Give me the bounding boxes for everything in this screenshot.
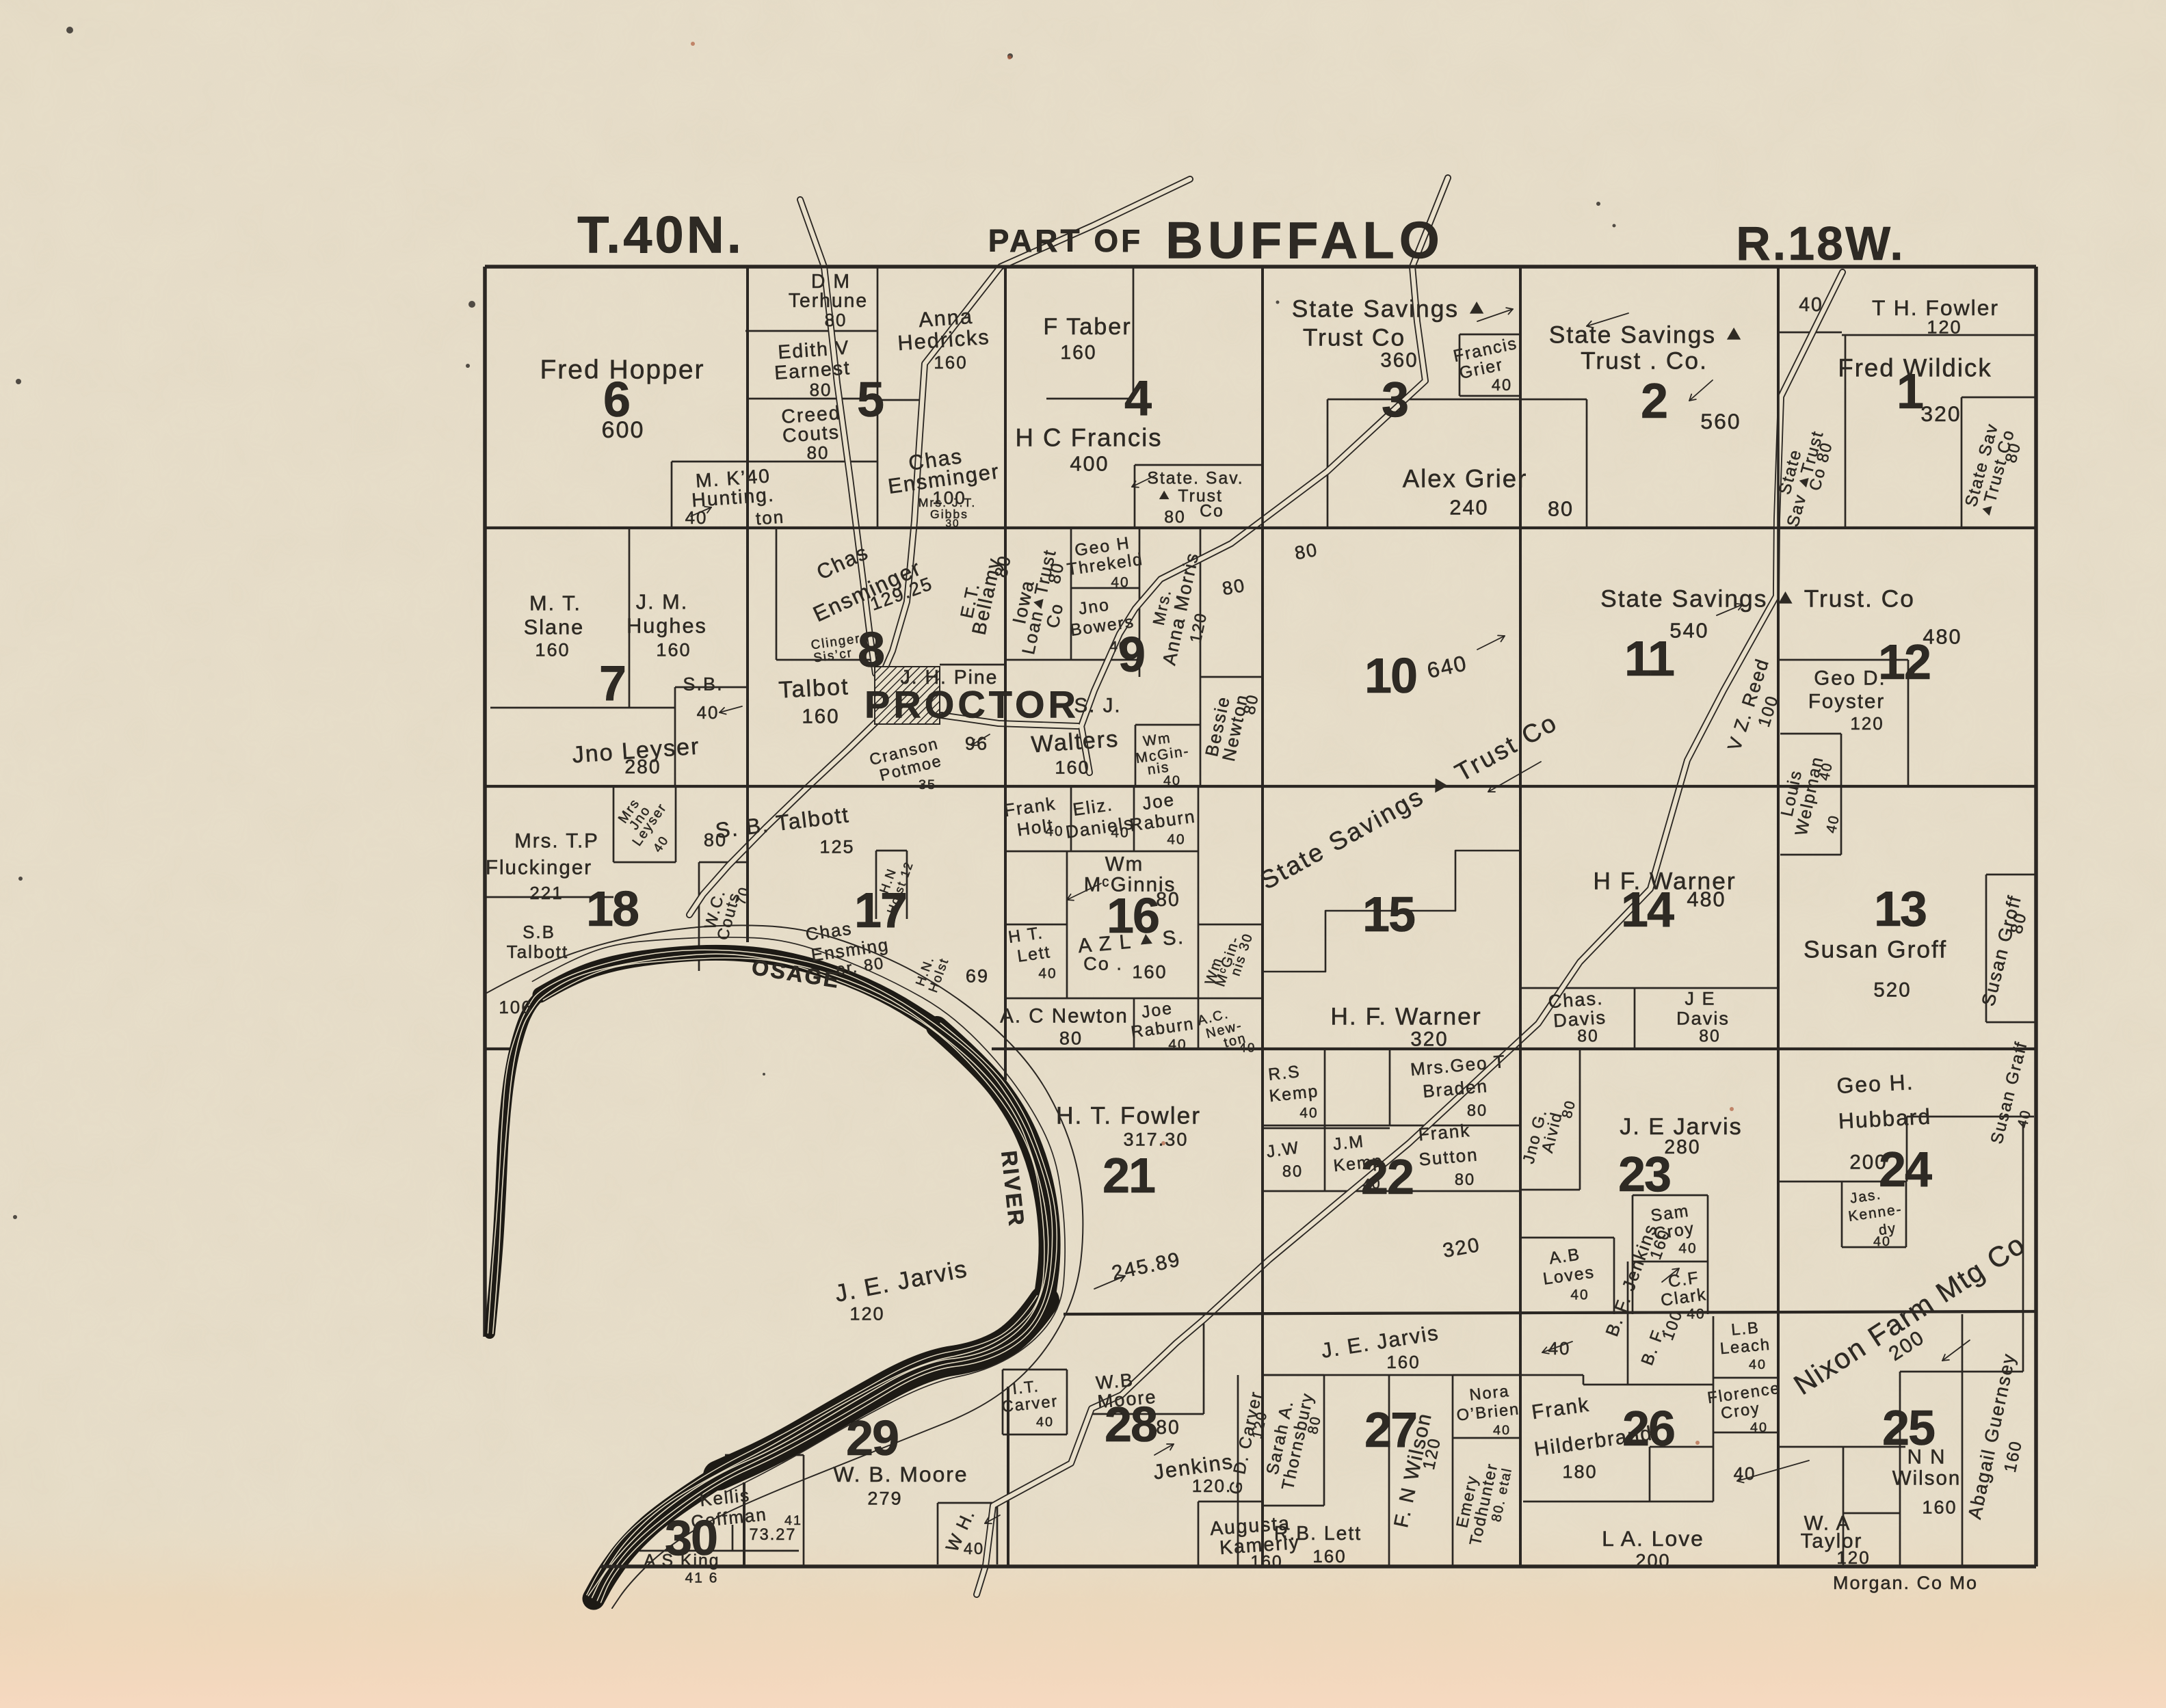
svg-text:9: 9 — [1118, 628, 1144, 682]
svg-text:80: 80 — [704, 829, 727, 851]
svg-text:15: 15 — [1362, 888, 1415, 942]
svg-text:S. J.: S. J. — [1074, 695, 1121, 717]
svg-text:320: 320 — [1920, 401, 1961, 426]
svg-text:80: 80 — [1548, 497, 1574, 521]
svg-text:Fred Wildick: Fred Wildick — [1838, 354, 1992, 382]
svg-text:120: 120 — [1927, 317, 1962, 338]
svg-text:120: 120 — [1836, 1547, 1870, 1568]
svg-text:106: 106 — [499, 997, 532, 1017]
svg-text:200: 200 — [1849, 1151, 1887, 1174]
svg-text:80: 80 — [1282, 1163, 1303, 1181]
svg-text:J. H. Pine: J. H. Pine — [901, 667, 999, 689]
svg-text:13: 13 — [1874, 882, 1926, 937]
svg-text:Co .: Co . — [1083, 953, 1123, 974]
svg-text:S.B: S.B — [523, 922, 555, 942]
svg-text:80: 80 — [1059, 1028, 1083, 1049]
svg-text:40: 40 — [1167, 832, 1185, 848]
svg-text:40: 40 — [1750, 1420, 1768, 1435]
svg-text:40: 40 — [1687, 1307, 1705, 1322]
svg-text:80: 80 — [825, 310, 847, 330]
svg-text:80: 80 — [1467, 1102, 1488, 1120]
svg-text:40: 40 — [1749, 1357, 1767, 1372]
svg-text:240: 240 — [1449, 496, 1488, 520]
svg-text:40: 40 — [1299, 1106, 1318, 1121]
svg-text:18: 18 — [586, 882, 638, 937]
svg-text:80: 80 — [1164, 509, 1186, 527]
svg-text:80: 80 — [1156, 1417, 1180, 1439]
svg-text:Trust . Co.: Trust . Co. — [1581, 348, 1708, 375]
svg-text:Geo H.: Geo H. — [1836, 1069, 1915, 1098]
svg-text:29: 29 — [846, 1411, 898, 1466]
svg-text:160: 160 — [1312, 1546, 1346, 1566]
svg-text:Alex Grier: Alex Grier — [1403, 465, 1528, 493]
svg-text:40: 40 — [1873, 1234, 1891, 1249]
svg-text:80: 80 — [1699, 1028, 1721, 1046]
svg-text:40: 40 — [1239, 1041, 1256, 1055]
svg-text:40: 40 — [697, 702, 719, 723]
svg-text:80: 80 — [807, 442, 830, 463]
svg-text:7: 7 — [599, 656, 625, 711]
svg-text:Susan Groff: Susan Groff — [1804, 937, 1947, 963]
svg-text:40: 40 — [1036, 1415, 1054, 1430]
svg-text:160: 160 — [656, 639, 691, 660]
svg-text:80: 80 — [1455, 1171, 1475, 1189]
svg-text:8: 8 — [858, 623, 884, 678]
svg-text:40: 40 — [964, 1540, 984, 1558]
svg-text:96: 96 — [965, 733, 988, 754]
svg-text:Talbot: Talbot — [778, 673, 849, 703]
svg-text:F Taber: F Taber — [1043, 314, 1131, 340]
svg-text:11: 11 — [1624, 632, 1674, 686]
svg-text:69: 69 — [966, 965, 989, 987]
svg-text:480: 480 — [1687, 888, 1726, 911]
svg-text:40: 40 — [1109, 639, 1128, 655]
svg-text:J.M: J.M — [1332, 1132, 1365, 1154]
svg-text:80: 80 — [1156, 889, 1180, 911]
svg-text:80: 80 — [1220, 574, 1247, 599]
svg-text:40: 40 — [1799, 294, 1823, 316]
svg-text:160: 160 — [1060, 342, 1096, 364]
svg-text:N N: N N — [1907, 1446, 1946, 1469]
svg-text:Davis: Davis — [1676, 1008, 1730, 1029]
svg-text:180: 180 — [1562, 1461, 1597, 1482]
svg-text:400: 400 — [1070, 452, 1109, 476]
svg-text:40: 40 — [1362, 1177, 1381, 1192]
svg-text:120: 120 — [1850, 713, 1884, 734]
svg-text:540: 540 — [1669, 619, 1708, 643]
svg-text:41 6: 41 6 — [685, 1571, 719, 1586]
svg-text:H. T. Fowler: H. T. Fowler — [1056, 1103, 1201, 1130]
svg-text:120: 120 — [849, 1303, 884, 1324]
svg-text:73.27: 73.27 — [749, 1526, 796, 1544]
svg-text:T.40N.: T.40N. — [577, 206, 744, 265]
svg-text:160: 160 — [1250, 1553, 1282, 1572]
svg-text:40: 40 — [1168, 1037, 1187, 1053]
svg-text:160: 160 — [1132, 961, 1167, 983]
svg-text:40: 40 — [1163, 773, 1181, 788]
svg-text:40: 40 — [1493, 1423, 1511, 1438]
svg-text:40: 40 — [1045, 824, 1064, 840]
svg-text:40: 40 — [1734, 1463, 1756, 1484]
svg-text:320: 320 — [1410, 1028, 1448, 1051]
svg-text:560: 560 — [1700, 409, 1741, 433]
svg-text:Talbott: Talbott — [507, 942, 568, 962]
svg-text:2: 2 — [1641, 374, 1667, 429]
svg-text:10: 10 — [1364, 649, 1416, 704]
svg-text:221: 221 — [529, 883, 563, 903]
svg-text:State. Sav.: State. Sav. — [1147, 470, 1243, 488]
svg-text:40: 40 — [1492, 377, 1512, 395]
svg-text:40: 40 — [685, 507, 708, 528]
svg-text:Terhune: Terhune — [789, 290, 868, 312]
svg-text:160: 160 — [535, 639, 570, 660]
svg-text:80: 80 — [1293, 539, 1319, 563]
svg-text:R.S: R.S — [1267, 1063, 1302, 1084]
svg-text:PART OF: PART OF — [988, 223, 1143, 258]
svg-text:40: 40 — [1038, 966, 1057, 982]
svg-text:Hughes: Hughes — [626, 614, 707, 638]
svg-text:279: 279 — [867, 1488, 902, 1509]
svg-text:Mrs. T.P: Mrs. T.P — [514, 830, 599, 853]
svg-text:Slane: Slane — [524, 615, 584, 639]
svg-text:PROCTOR: PROCTOR — [864, 683, 1079, 726]
svg-text:280: 280 — [1664, 1136, 1700, 1158]
svg-text:40: 40 — [1111, 575, 1129, 591]
svg-text:30: 30 — [945, 518, 960, 530]
svg-text:Fluckinger: Fluckinger — [486, 857, 592, 879]
svg-text:4: 4 — [1124, 371, 1152, 426]
svg-text:Hubbard: Hubbard — [1838, 1104, 1932, 1133]
svg-text:200: 200 — [1635, 1550, 1670, 1571]
svg-text:W. B. Moore: W. B. Moore — [833, 1462, 968, 1486]
svg-text:600: 600 — [602, 417, 645, 443]
svg-text:21: 21 — [1102, 1149, 1155, 1203]
svg-text:40: 40 — [1570, 1287, 1589, 1303]
svg-text:160: 160 — [1386, 1352, 1420, 1372]
svg-text:Foyster: Foyster — [1808, 691, 1885, 713]
svg-text:280: 280 — [624, 756, 661, 778]
svg-text:160: 160 — [1922, 1497, 1957, 1518]
svg-text:BUFFALO: BUFFALO — [1165, 212, 1444, 270]
svg-text:State Savings ⯅ Trust. Co: State Savings ⯅ Trust. Co — [1600, 586, 1915, 613]
svg-text:160: 160 — [934, 352, 967, 373]
svg-text:A. C Newton: A. C Newton — [1000, 1005, 1128, 1028]
svg-text:80: 80 — [810, 379, 832, 400]
svg-text:35: 35 — [919, 777, 936, 792]
svg-text:40: 40 — [1111, 825, 1129, 841]
svg-text:A S King: A S King — [644, 1552, 720, 1571]
svg-text:40: 40 — [1548, 1338, 1571, 1359]
svg-text:R.18W.: R.18W. — [1736, 217, 1905, 270]
svg-text:L A. Love: L A. Love — [1602, 1526, 1704, 1551]
svg-text:317.30: 317.30 — [1124, 1129, 1189, 1150]
svg-text:80: 80 — [1577, 1028, 1599, 1046]
svg-text:ton: ton — [755, 507, 785, 529]
svg-text:J. M.: J. M. — [636, 590, 688, 614]
svg-text:23: 23 — [1618, 1147, 1670, 1202]
svg-text:L.B: L.B — [1730, 1319, 1760, 1339]
svg-text:S.B.: S.B. — [683, 673, 723, 695]
svg-text:Wm: Wm — [1105, 853, 1144, 876]
svg-text:125: 125 — [819, 836, 854, 857]
svg-text:360: 360 — [1380, 349, 1418, 372]
svg-text:State Savings ⯅: State Savings ⯅ — [1292, 296, 1488, 323]
svg-text:Trust Co: Trust Co — [1303, 325, 1405, 351]
svg-text:State Savings ⯅: State Savings ⯅ — [1549, 322, 1745, 349]
svg-text:Fred Hopper: Fred Hopper — [540, 356, 704, 385]
svg-text:160: 160 — [1055, 757, 1089, 778]
svg-text:Wilson: Wilson — [1892, 1467, 1962, 1490]
svg-text:160: 160 — [802, 706, 839, 728]
svg-text:Geo D.: Geo D. — [1814, 667, 1886, 690]
svg-text:3: 3 — [1382, 373, 1408, 427]
svg-text:Morgan. Co Mo: Morgan. Co Mo — [1833, 1573, 1978, 1593]
svg-text:5: 5 — [857, 373, 884, 427]
svg-text:40: 40 — [1678, 1241, 1697, 1257]
svg-text:H C Francis: H C Francis — [1015, 424, 1162, 452]
svg-text:J E: J E — [1685, 988, 1715, 1009]
svg-text:M. T.: M. T. — [529, 591, 581, 615]
svg-text:480: 480 — [1923, 625, 1962, 649]
svg-text:520: 520 — [1873, 979, 1911, 1002]
svg-text:Co: Co — [1200, 503, 1224, 521]
svg-text:H. F. Warner: H. F. Warner — [1330, 1004, 1481, 1030]
